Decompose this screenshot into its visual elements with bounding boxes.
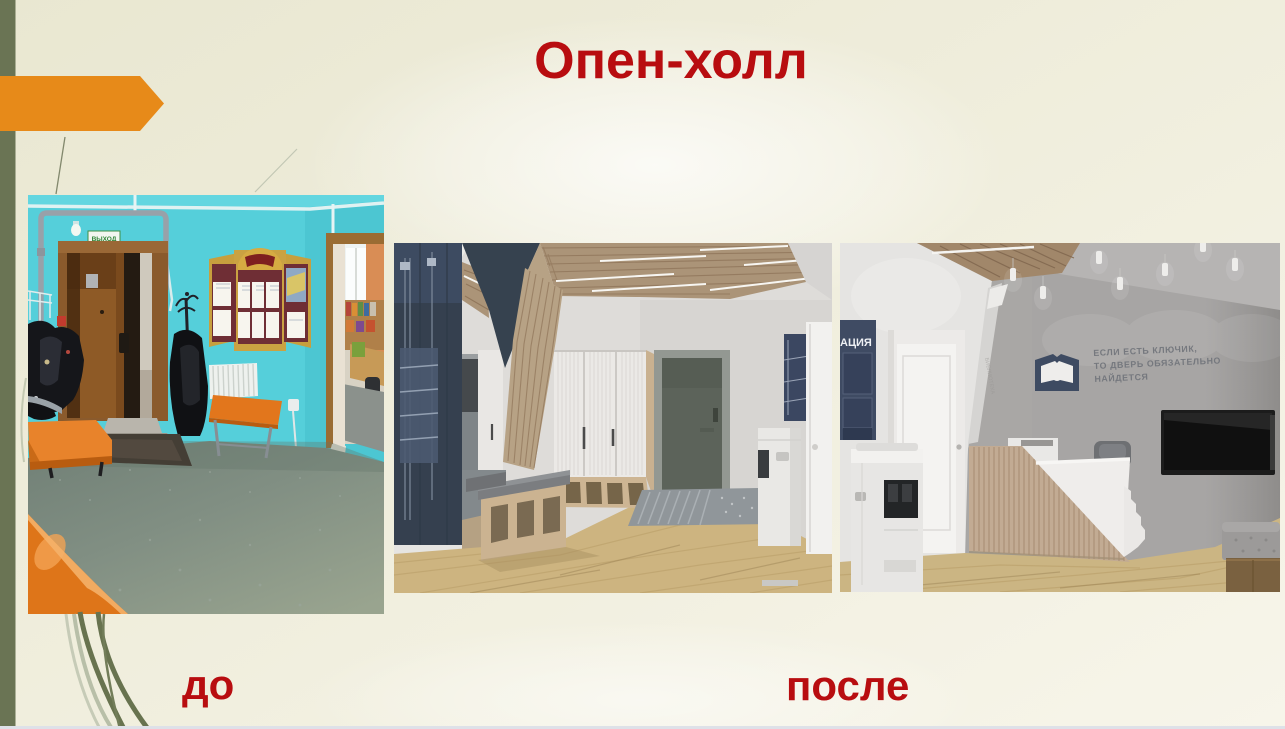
- svg-text:Опен-холл: Опен-холл: [534, 32, 808, 90]
- svg-text:АЦИЯ: АЦИЯ: [840, 337, 872, 349]
- svg-text:до: до: [182, 661, 234, 708]
- svg-text:после: после: [786, 662, 909, 709]
